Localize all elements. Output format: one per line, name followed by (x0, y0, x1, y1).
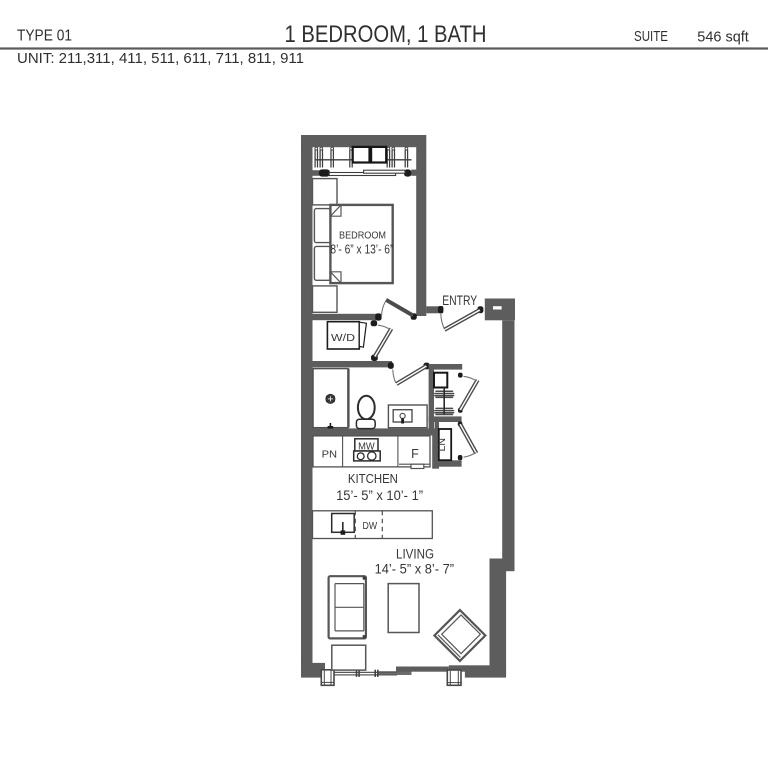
svg-text:KITCHEN: KITCHEN (348, 471, 398, 486)
svg-text:LN: LN (436, 438, 448, 451)
svg-text:14’- 5” x 8’- 7”: 14’- 5” x 8’- 7” (375, 562, 455, 577)
svg-text:F: F (411, 447, 419, 461)
svg-text:LIVING: LIVING (396, 547, 434, 562)
svg-text:BEDROOM: BEDROOM (339, 230, 386, 242)
svg-text:8’- 6” x 13’- 6”: 8’- 6” x 13’- 6” (330, 243, 393, 257)
svg-text:TYPE 01: TYPE 01 (17, 28, 72, 45)
svg-text:ENTRY: ENTRY (442, 293, 477, 308)
svg-text:546 sqft: 546 sqft (697, 29, 749, 46)
svg-text:W/D: W/D (331, 332, 355, 344)
svg-text:PN: PN (322, 449, 338, 460)
svg-text:1 BEDROOM, 1 BATH: 1 BEDROOM, 1 BATH (285, 21, 487, 48)
svg-text:UNIT: 211,311, 411, 511, 611,: UNIT: 211,311, 411, 511, 611, 711, 811, … (17, 51, 304, 67)
svg-text:15’- 5” x 10’- 1”: 15’- 5” x 10’- 1” (336, 488, 423, 503)
svg-text:DW: DW (363, 520, 378, 532)
svg-text:SUITE: SUITE (634, 28, 668, 45)
